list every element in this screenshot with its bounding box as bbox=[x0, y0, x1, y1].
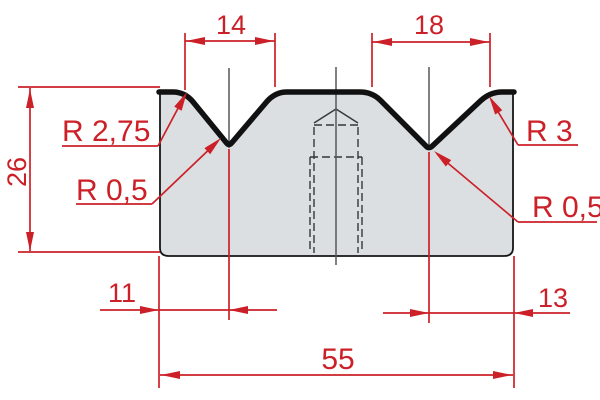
arrowhead bbox=[186, 37, 205, 45]
dimension-26: 26 bbox=[2, 87, 160, 252]
arrowhead bbox=[514, 309, 533, 317]
dim-18-label: 18 bbox=[414, 10, 444, 40]
dim-11-label: 11 bbox=[108, 278, 136, 308]
radius-left-vee-label: R 0,5 bbox=[76, 174, 148, 207]
technical-drawing-page: 14 18 26 R 2,75 R 0,5 R 3 bbox=[0, 0, 600, 400]
dimension-14: 14 bbox=[185, 10, 275, 90]
radius-right-vee-label: R 0,5 bbox=[532, 191, 600, 224]
dimension-18: 18 bbox=[372, 10, 490, 87]
arrowhead bbox=[373, 38, 392, 46]
arrowhead bbox=[140, 306, 159, 314]
die-drawing-svg: 14 18 26 R 2,75 R 0,5 R 3 bbox=[0, 0, 600, 400]
arrowhead bbox=[470, 38, 489, 46]
dim-13-label: 13 bbox=[538, 283, 568, 313]
dimension-55: 55 bbox=[160, 343, 513, 379]
arrowhead bbox=[493, 371, 512, 379]
arrowhead bbox=[410, 309, 429, 317]
arrowhead bbox=[255, 37, 274, 45]
arrowhead bbox=[161, 371, 180, 379]
dim-55-label: 55 bbox=[321, 343, 354, 376]
arrowhead bbox=[229, 306, 248, 314]
dim-26-label: 26 bbox=[2, 157, 32, 187]
radius-left-shoulder-label: R 2,75 bbox=[62, 115, 150, 148]
dim-14-label: 14 bbox=[216, 10, 246, 40]
radius-right-shoulder-label: R 3 bbox=[526, 115, 573, 148]
arrowhead bbox=[26, 232, 34, 251]
arrowhead bbox=[26, 89, 34, 108]
